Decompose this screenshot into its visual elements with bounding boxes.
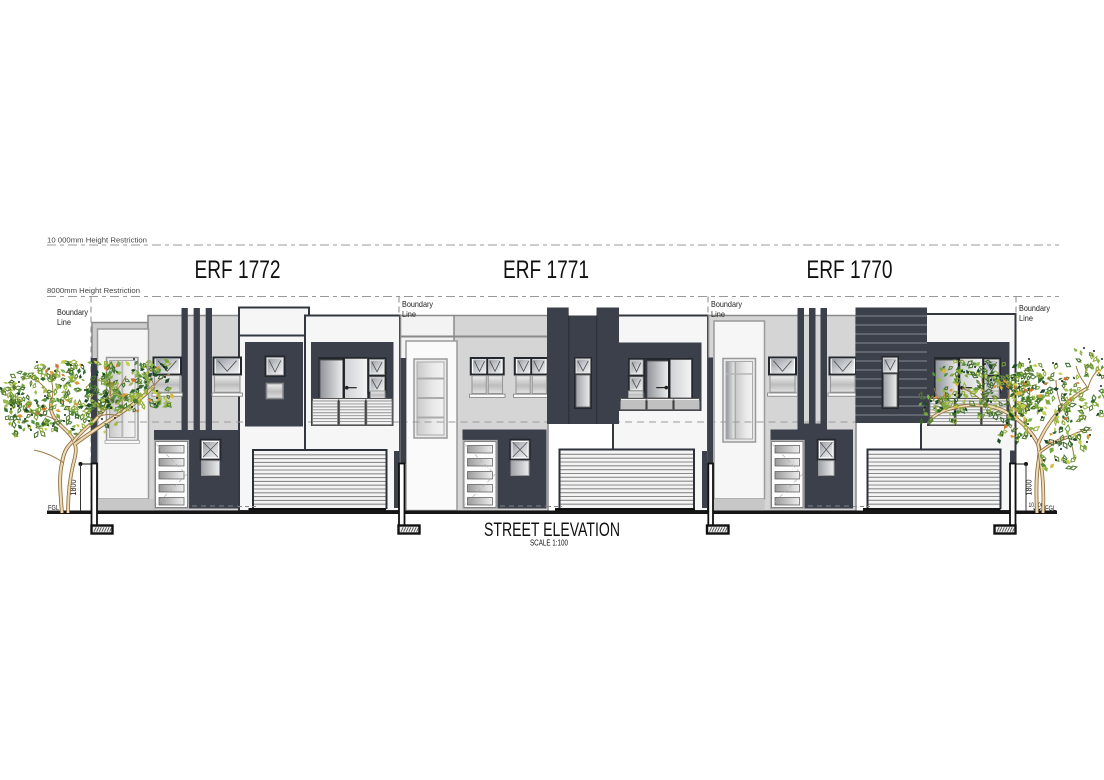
svg-text:10 000mm Height Restriction: 10 000mm Height Restriction: [47, 236, 147, 245]
svg-text:ERF 1772: ERF 1772: [195, 256, 281, 284]
svg-text:Line: Line: [1019, 313, 1033, 323]
svg-text:Line: Line: [57, 317, 71, 327]
svg-text:Boundary: Boundary: [57, 307, 89, 317]
svg-text:Boundary: Boundary: [402, 299, 434, 309]
svg-text:ERF 1770: ERF 1770: [807, 256, 893, 284]
svg-text:FGL: FGL: [1045, 506, 1056, 513]
svg-text:1800: 1800: [1025, 479, 1034, 495]
svg-text:SCALE 1:100: SCALE 1:100: [530, 539, 568, 548]
svg-text:Boundary: Boundary: [711, 299, 743, 309]
svg-text:Line: Line: [711, 309, 725, 319]
svg-text:Boundary: Boundary: [1019, 303, 1051, 313]
svg-text:Line: Line: [402, 309, 416, 319]
svg-text:FGL: FGL: [48, 505, 59, 512]
svg-text:8000mm Height Restriction: 8000mm Height Restriction: [47, 286, 140, 295]
svg-text:ERF 1771: ERF 1771: [503, 256, 589, 284]
